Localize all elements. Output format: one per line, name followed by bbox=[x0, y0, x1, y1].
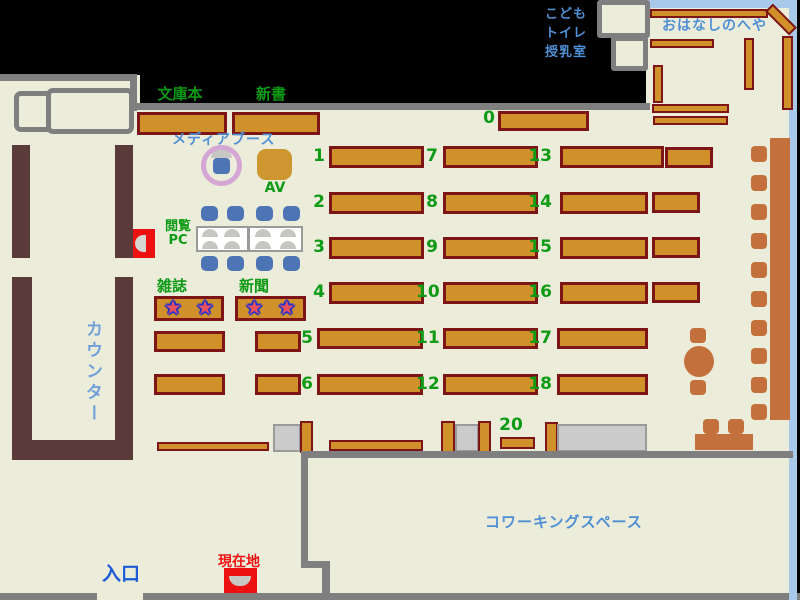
coworking-wall-top bbox=[301, 451, 793, 458]
kids-toilet-room bbox=[597, 0, 650, 38]
storytime-shelf bbox=[650, 39, 714, 48]
av-label: AV bbox=[258, 181, 292, 196]
low-shelf bbox=[329, 440, 423, 451]
shinsho-label: 新書 bbox=[248, 86, 294, 103]
star-icon: ★ bbox=[246, 299, 263, 318]
kids-label-line3: 授乳室 bbox=[543, 43, 589, 62]
shelf-label-16: 16 bbox=[528, 284, 552, 301]
kids-label-line2: トイレ bbox=[543, 24, 589, 43]
entrance-label: 入口 bbox=[102, 559, 140, 586]
shelf-label-17: 17 bbox=[528, 330, 552, 347]
shelf-label-7: 7 bbox=[416, 148, 438, 165]
window-counter-desk bbox=[770, 138, 790, 420]
reading-pc-label: 閲覧 PC bbox=[160, 220, 196, 249]
service-desk-large bbox=[46, 88, 134, 134]
shelf-13 bbox=[560, 146, 664, 168]
pc-chair bbox=[256, 256, 273, 271]
counter-label: カウンター bbox=[80, 320, 105, 425]
chair bbox=[690, 328, 706, 343]
media-booth-screen bbox=[211, 150, 232, 158]
shelf-15 bbox=[560, 237, 648, 259]
star-icon: ★ bbox=[278, 299, 295, 318]
shelf-20 bbox=[500, 437, 535, 449]
kids-label-line1: こども bbox=[543, 5, 589, 24]
storytime-shelf bbox=[782, 36, 793, 110]
chair bbox=[690, 380, 706, 395]
round-table bbox=[684, 346, 714, 377]
end-shelf bbox=[478, 421, 491, 453]
chair bbox=[703, 419, 719, 434]
pc-chair bbox=[283, 206, 300, 221]
chair bbox=[751, 291, 767, 307]
storytime-shelf bbox=[653, 65, 663, 103]
pc-chair bbox=[201, 206, 218, 221]
chair bbox=[751, 233, 767, 249]
shelf-17 bbox=[557, 328, 648, 349]
pc-chair bbox=[256, 206, 273, 221]
nursing-room bbox=[611, 36, 648, 71]
chair bbox=[751, 204, 767, 220]
equipment-box bbox=[557, 424, 647, 452]
coworking-wall-step-down bbox=[322, 561, 330, 600]
shelf-6 bbox=[317, 374, 423, 395]
shelf-10 bbox=[443, 282, 538, 304]
shelf-9 bbox=[443, 237, 538, 259]
side-shelf bbox=[652, 192, 700, 213]
reading-pc-line2: PC bbox=[160, 234, 196, 248]
shelf-label-5: 5 bbox=[291, 330, 313, 347]
reading-pc-line1: 閲覧 bbox=[160, 220, 196, 234]
media-booth-seat bbox=[213, 158, 230, 174]
newspaper-shelf: ★ ★ bbox=[235, 296, 306, 321]
wall-bottom-right bbox=[143, 593, 800, 600]
shelf-label-15: 15 bbox=[528, 239, 552, 256]
av-booth bbox=[257, 149, 292, 180]
counter-wall bbox=[12, 145, 30, 258]
wall-top-left bbox=[0, 74, 137, 81]
shinbun-label: 新聞 bbox=[234, 278, 274, 295]
counter-wall bbox=[12, 440, 133, 460]
counter-wall bbox=[12, 277, 32, 460]
equipment-box bbox=[273, 424, 301, 452]
shelf-14 bbox=[560, 192, 648, 214]
coworking-wall-left bbox=[301, 451, 308, 568]
shelf-0 bbox=[498, 111, 589, 131]
current-location-marker bbox=[224, 568, 257, 593]
shelf-label-12: 12 bbox=[416, 376, 438, 393]
shelf-label-6: 6 bbox=[291, 376, 313, 393]
side-shelf bbox=[665, 147, 713, 168]
pc-chair bbox=[201, 256, 218, 271]
side-shelf bbox=[652, 282, 700, 303]
shelf-label-18: 18 bbox=[528, 376, 552, 393]
shelf-4 bbox=[329, 282, 424, 304]
shelf-label-3: 3 bbox=[301, 239, 325, 256]
shelf-18 bbox=[557, 374, 648, 395]
low-shelf bbox=[154, 331, 225, 352]
chair bbox=[728, 419, 744, 434]
storytime-shelf bbox=[650, 9, 768, 18]
chair bbox=[751, 175, 767, 191]
shelf-label-20: 20 bbox=[498, 417, 524, 434]
counter-wall bbox=[115, 145, 133, 258]
pc-chair bbox=[227, 206, 244, 221]
storytime-shelf bbox=[744, 38, 754, 90]
storytime-room-label: おはなしのへや bbox=[662, 15, 782, 35]
bunkobon-label: 文庫本 bbox=[150, 86, 210, 103]
shelf-label-1: 1 bbox=[301, 148, 325, 165]
equipment-box bbox=[455, 424, 479, 452]
shelf-11 bbox=[443, 328, 538, 349]
chair bbox=[751, 320, 767, 336]
shelf-12 bbox=[443, 374, 538, 395]
bench bbox=[695, 434, 753, 450]
shelf-1 bbox=[329, 146, 424, 168]
star-icon: ★ bbox=[164, 299, 181, 318]
shelf-label-11: 11 bbox=[416, 330, 438, 347]
media-booth-label: メディアブース bbox=[172, 129, 292, 149]
side-shelf bbox=[652, 237, 700, 258]
end-shelf bbox=[441, 421, 455, 453]
shelf-label-13: 13 bbox=[528, 148, 552, 165]
shelf-label-4: 4 bbox=[301, 284, 325, 301]
kids-toilet-label: こども トイレ 授乳室 bbox=[543, 5, 589, 62]
shelf-label-8: 8 bbox=[416, 194, 438, 211]
shelf-8 bbox=[443, 192, 538, 214]
shelf-5 bbox=[317, 328, 423, 349]
shelf-label-0: 0 bbox=[475, 110, 495, 127]
zasshi-label: 雑誌 bbox=[152, 278, 192, 295]
chair bbox=[751, 404, 767, 420]
library-floor-map: こども トイレ 授乳室 おはなしのへや カウンター 文庫本 新書 0 メディアブ… bbox=[0, 0, 800, 600]
magazine-shelf: ★ ★ bbox=[154, 296, 224, 321]
storytime-shelf bbox=[653, 116, 728, 125]
chair bbox=[751, 146, 767, 162]
shelf-2 bbox=[329, 192, 424, 214]
chair bbox=[751, 377, 767, 393]
wall-bottom-left bbox=[0, 593, 97, 600]
end-shelf bbox=[300, 421, 313, 453]
counter-wall bbox=[115, 277, 133, 443]
chair bbox=[751, 348, 767, 364]
gate-door-icon bbox=[135, 235, 146, 252]
low-shelf bbox=[157, 442, 269, 451]
chair bbox=[751, 262, 767, 278]
coworking-label: コワーキングスペース bbox=[485, 511, 665, 532]
shelf-16 bbox=[560, 282, 648, 304]
shelf-label-9: 9 bbox=[416, 239, 438, 256]
pc-chair bbox=[227, 256, 244, 271]
shelf-3 bbox=[329, 237, 424, 259]
shelf-7 bbox=[443, 146, 538, 168]
counter-gate bbox=[133, 229, 155, 258]
current-location-dot-icon bbox=[229, 576, 251, 586]
star-icon: ★ bbox=[196, 299, 213, 318]
pc-chair bbox=[283, 256, 300, 271]
shelf-label-2: 2 bbox=[301, 194, 325, 211]
storytime-shelf bbox=[652, 104, 729, 113]
shelf-label-10: 10 bbox=[416, 284, 438, 301]
low-shelf bbox=[154, 374, 225, 395]
shelf-label-14: 14 bbox=[528, 194, 552, 211]
wall-top-main bbox=[130, 103, 650, 110]
